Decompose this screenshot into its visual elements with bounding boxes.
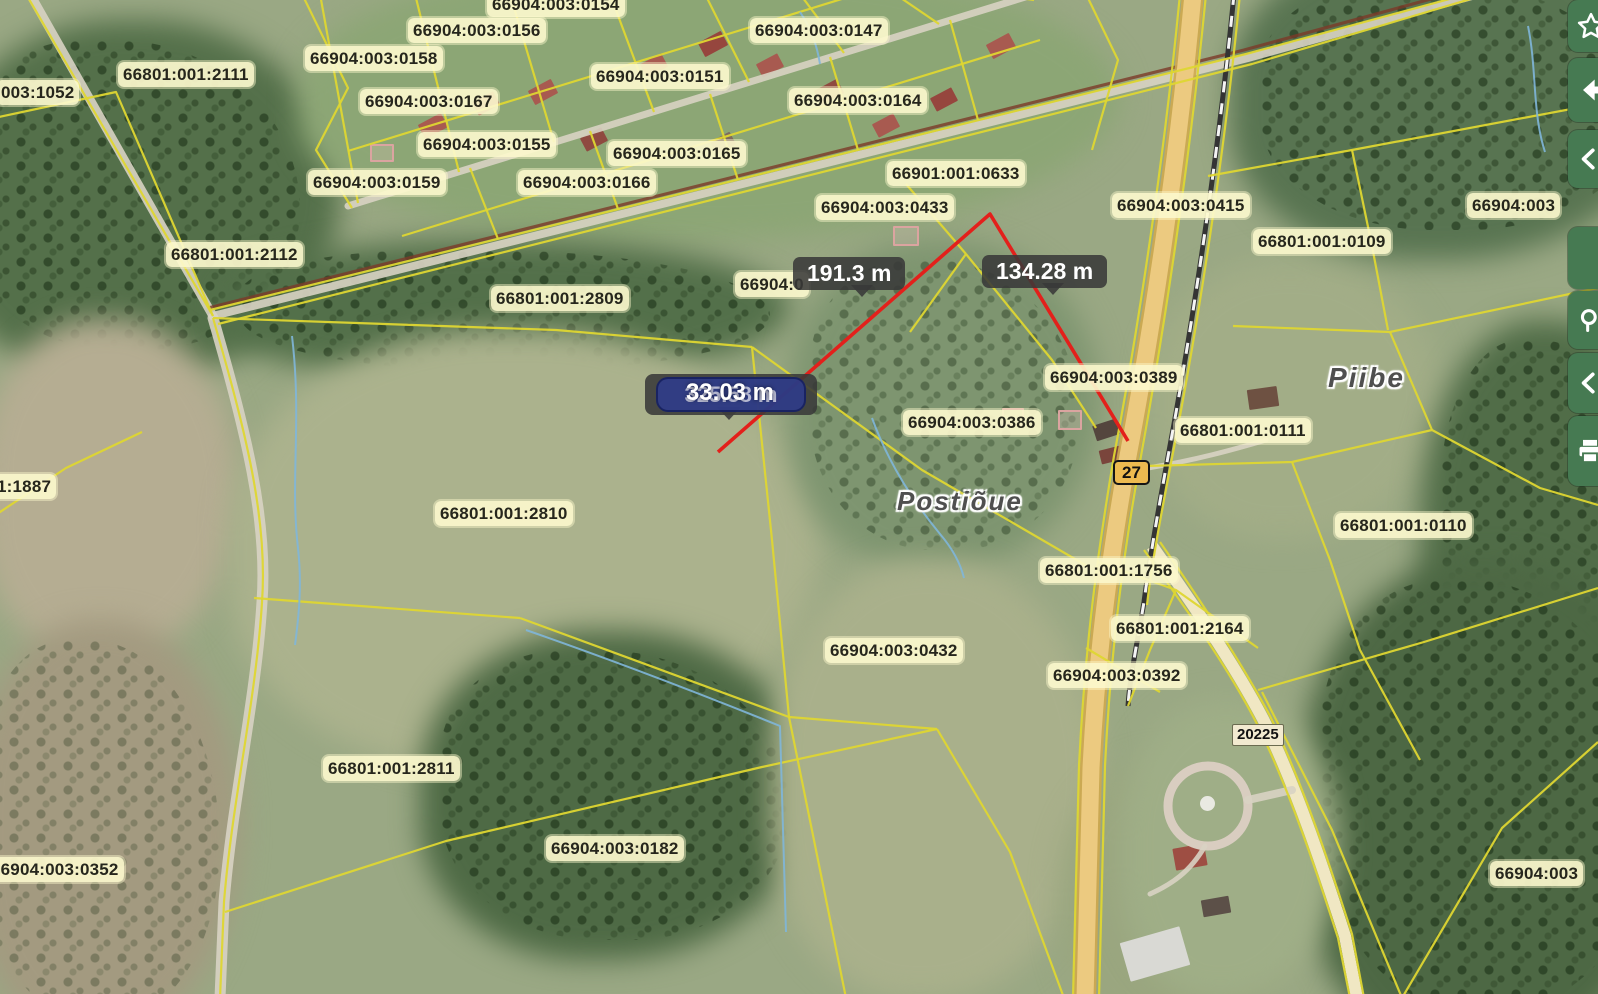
identify-button[interactable]: [1568, 291, 1598, 349]
map-viewport: 66904:003:015466904:003:015666904:003:01…: [0, 0, 1598, 994]
measure-segment-tooltip: 191.3 m: [793, 257, 905, 290]
back-button[interactable]: [1568, 58, 1598, 122]
print-button[interactable]: [1568, 416, 1598, 486]
printer-icon: [1576, 437, 1598, 465]
collapse-panel-button[interactable]: [1568, 130, 1598, 188]
panel-button[interactable]: [1568, 227, 1598, 289]
tooltip-pointer: [1042, 283, 1064, 306]
arrow-left-icon: [1576, 76, 1598, 104]
magnifier-icon: [1576, 306, 1598, 334]
measure-segment-tooltip: 134.28 m: [982, 255, 1107, 288]
map-toolbar: [1564, 0, 1598, 994]
favorites-button[interactable]: [1568, 0, 1598, 52]
measurement-overlay: 325.58 m 33.03 m 191.3 m134.28 m: [0, 0, 1598, 994]
star-icon: [1576, 11, 1598, 41]
chevron-left-icon: [1576, 370, 1598, 396]
collapse-panel-button-2[interactable]: [1568, 353, 1598, 413]
measure-current-value: 33.03 m: [648, 379, 812, 407]
tooltip-pointer: [851, 285, 873, 308]
chevron-left-icon: [1576, 146, 1598, 172]
